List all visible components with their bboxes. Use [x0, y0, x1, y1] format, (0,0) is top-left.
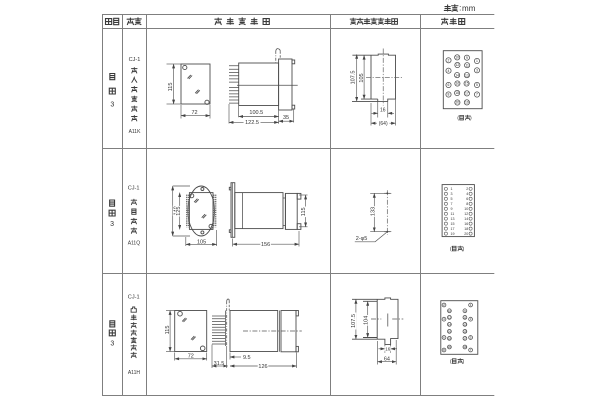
svg-text:12: 12: [456, 63, 460, 67]
svg-text:3: 3: [110, 221, 114, 228]
svg-text:104: 104: [363, 316, 369, 325]
svg-text:12: 12: [464, 212, 468, 216]
svg-text:18: 18: [455, 91, 459, 95]
svg-text:8: 8: [466, 202, 468, 206]
svg-text:126: 126: [258, 364, 267, 370]
svg-text:11: 11: [463, 315, 466, 319]
svg-text:17: 17: [451, 227, 455, 231]
svg-text:9: 9: [451, 207, 453, 211]
svg-text:(: (: [457, 115, 459, 121]
svg-text:6: 6: [466, 197, 468, 201]
svg-text:12: 12: [448, 315, 452, 319]
svg-text:A11H: A11H: [128, 370, 141, 376]
svg-text:15: 15: [465, 82, 469, 86]
svg-text:3: 3: [476, 68, 478, 72]
svg-text:4: 4: [448, 69, 450, 73]
svg-text:18: 18: [448, 336, 452, 340]
svg-text:19: 19: [465, 101, 469, 105]
svg-text:11: 11: [451, 212, 455, 216]
svg-text:1: 1: [476, 59, 478, 63]
svg-text:): ): [462, 246, 464, 252]
svg-text:31.5: 31.5: [214, 361, 225, 367]
svg-text:18: 18: [464, 227, 468, 231]
svg-text:A11K: A11K: [129, 129, 142, 135]
svg-text:16: 16: [456, 82, 460, 86]
svg-text:100.5: 100.5: [249, 110, 263, 116]
svg-text:(: (: [450, 246, 452, 252]
svg-text:): ): [470, 115, 472, 121]
svg-text:17: 17: [463, 336, 467, 340]
svg-text:10: 10: [455, 56, 459, 60]
svg-text:20: 20: [448, 345, 452, 349]
svg-text:9.5: 9.5: [243, 355, 251, 361]
svg-text:115: 115: [165, 326, 171, 335]
svg-text:5: 5: [476, 83, 478, 87]
svg-text:2: 2: [448, 58, 450, 62]
svg-text:72: 72: [191, 110, 197, 116]
svg-text:5: 5: [451, 197, 453, 201]
svg-text:14: 14: [448, 322, 452, 326]
svg-text:CJ-1: CJ-1: [129, 57, 141, 63]
svg-text:10: 10: [448, 309, 452, 313]
svg-text:107.5: 107.5: [351, 314, 357, 328]
svg-text:156: 156: [261, 242, 270, 248]
svg-text:3: 3: [110, 102, 114, 109]
svg-text:11: 11: [465, 63, 469, 67]
svg-text:(: (: [450, 359, 452, 365]
svg-text:7: 7: [451, 202, 453, 206]
svg-text:64: 64: [384, 356, 390, 362]
svg-text:133: 133: [371, 207, 377, 216]
svg-text:1: 1: [451, 187, 453, 191]
svg-text:35: 35: [283, 115, 289, 121]
svg-text:2: 2: [466, 187, 468, 191]
svg-text:19: 19: [451, 232, 455, 236]
svg-text:19: 19: [463, 345, 467, 349]
svg-text:16: 16: [385, 346, 391, 351]
svg-text:20: 20: [464, 232, 468, 236]
svg-text:13: 13: [465, 73, 469, 77]
svg-text:105: 105: [197, 240, 206, 246]
svg-text:CJ-1: CJ-1: [128, 186, 140, 192]
svg-text:17: 17: [465, 92, 469, 96]
svg-text:20: 20: [456, 101, 460, 105]
svg-text:72: 72: [188, 354, 194, 360]
svg-text:): ): [462, 359, 464, 365]
svg-text:16: 16: [380, 107, 386, 113]
svg-text:4: 4: [466, 192, 468, 196]
svg-text:(64): (64): [379, 121, 388, 127]
svg-text:2-φ5: 2-φ5: [356, 236, 368, 242]
svg-text:7: 7: [476, 93, 478, 97]
svg-text:14: 14: [455, 73, 459, 77]
svg-text:8: 8: [448, 93, 450, 97]
svg-text:3: 3: [451, 192, 453, 196]
svg-text:6: 6: [448, 83, 450, 87]
svg-text:A11Q: A11Q: [128, 241, 141, 247]
svg-text:10: 10: [464, 207, 468, 211]
svg-text:115: 115: [301, 207, 307, 216]
svg-text:3: 3: [110, 341, 114, 348]
svg-text:13: 13: [463, 322, 467, 326]
svg-text:CJ-1: CJ-1: [128, 294, 140, 300]
svg-text:15: 15: [451, 222, 455, 226]
svg-text:13: 13: [451, 217, 455, 221]
svg-text:107.5: 107.5: [351, 71, 357, 85]
svg-text:mm: mm: [462, 4, 476, 13]
svg-text:16: 16: [448, 329, 452, 333]
svg-text:9: 9: [466, 56, 468, 60]
svg-text:122.5: 122.5: [245, 120, 259, 126]
svg-text:115: 115: [168, 83, 174, 92]
svg-text:14: 14: [464, 217, 468, 221]
svg-text:125: 125: [176, 207, 182, 216]
svg-text:15: 15: [463, 329, 467, 333]
svg-text:16: 16: [464, 222, 468, 226]
svg-text:105: 105: [359, 73, 365, 82]
